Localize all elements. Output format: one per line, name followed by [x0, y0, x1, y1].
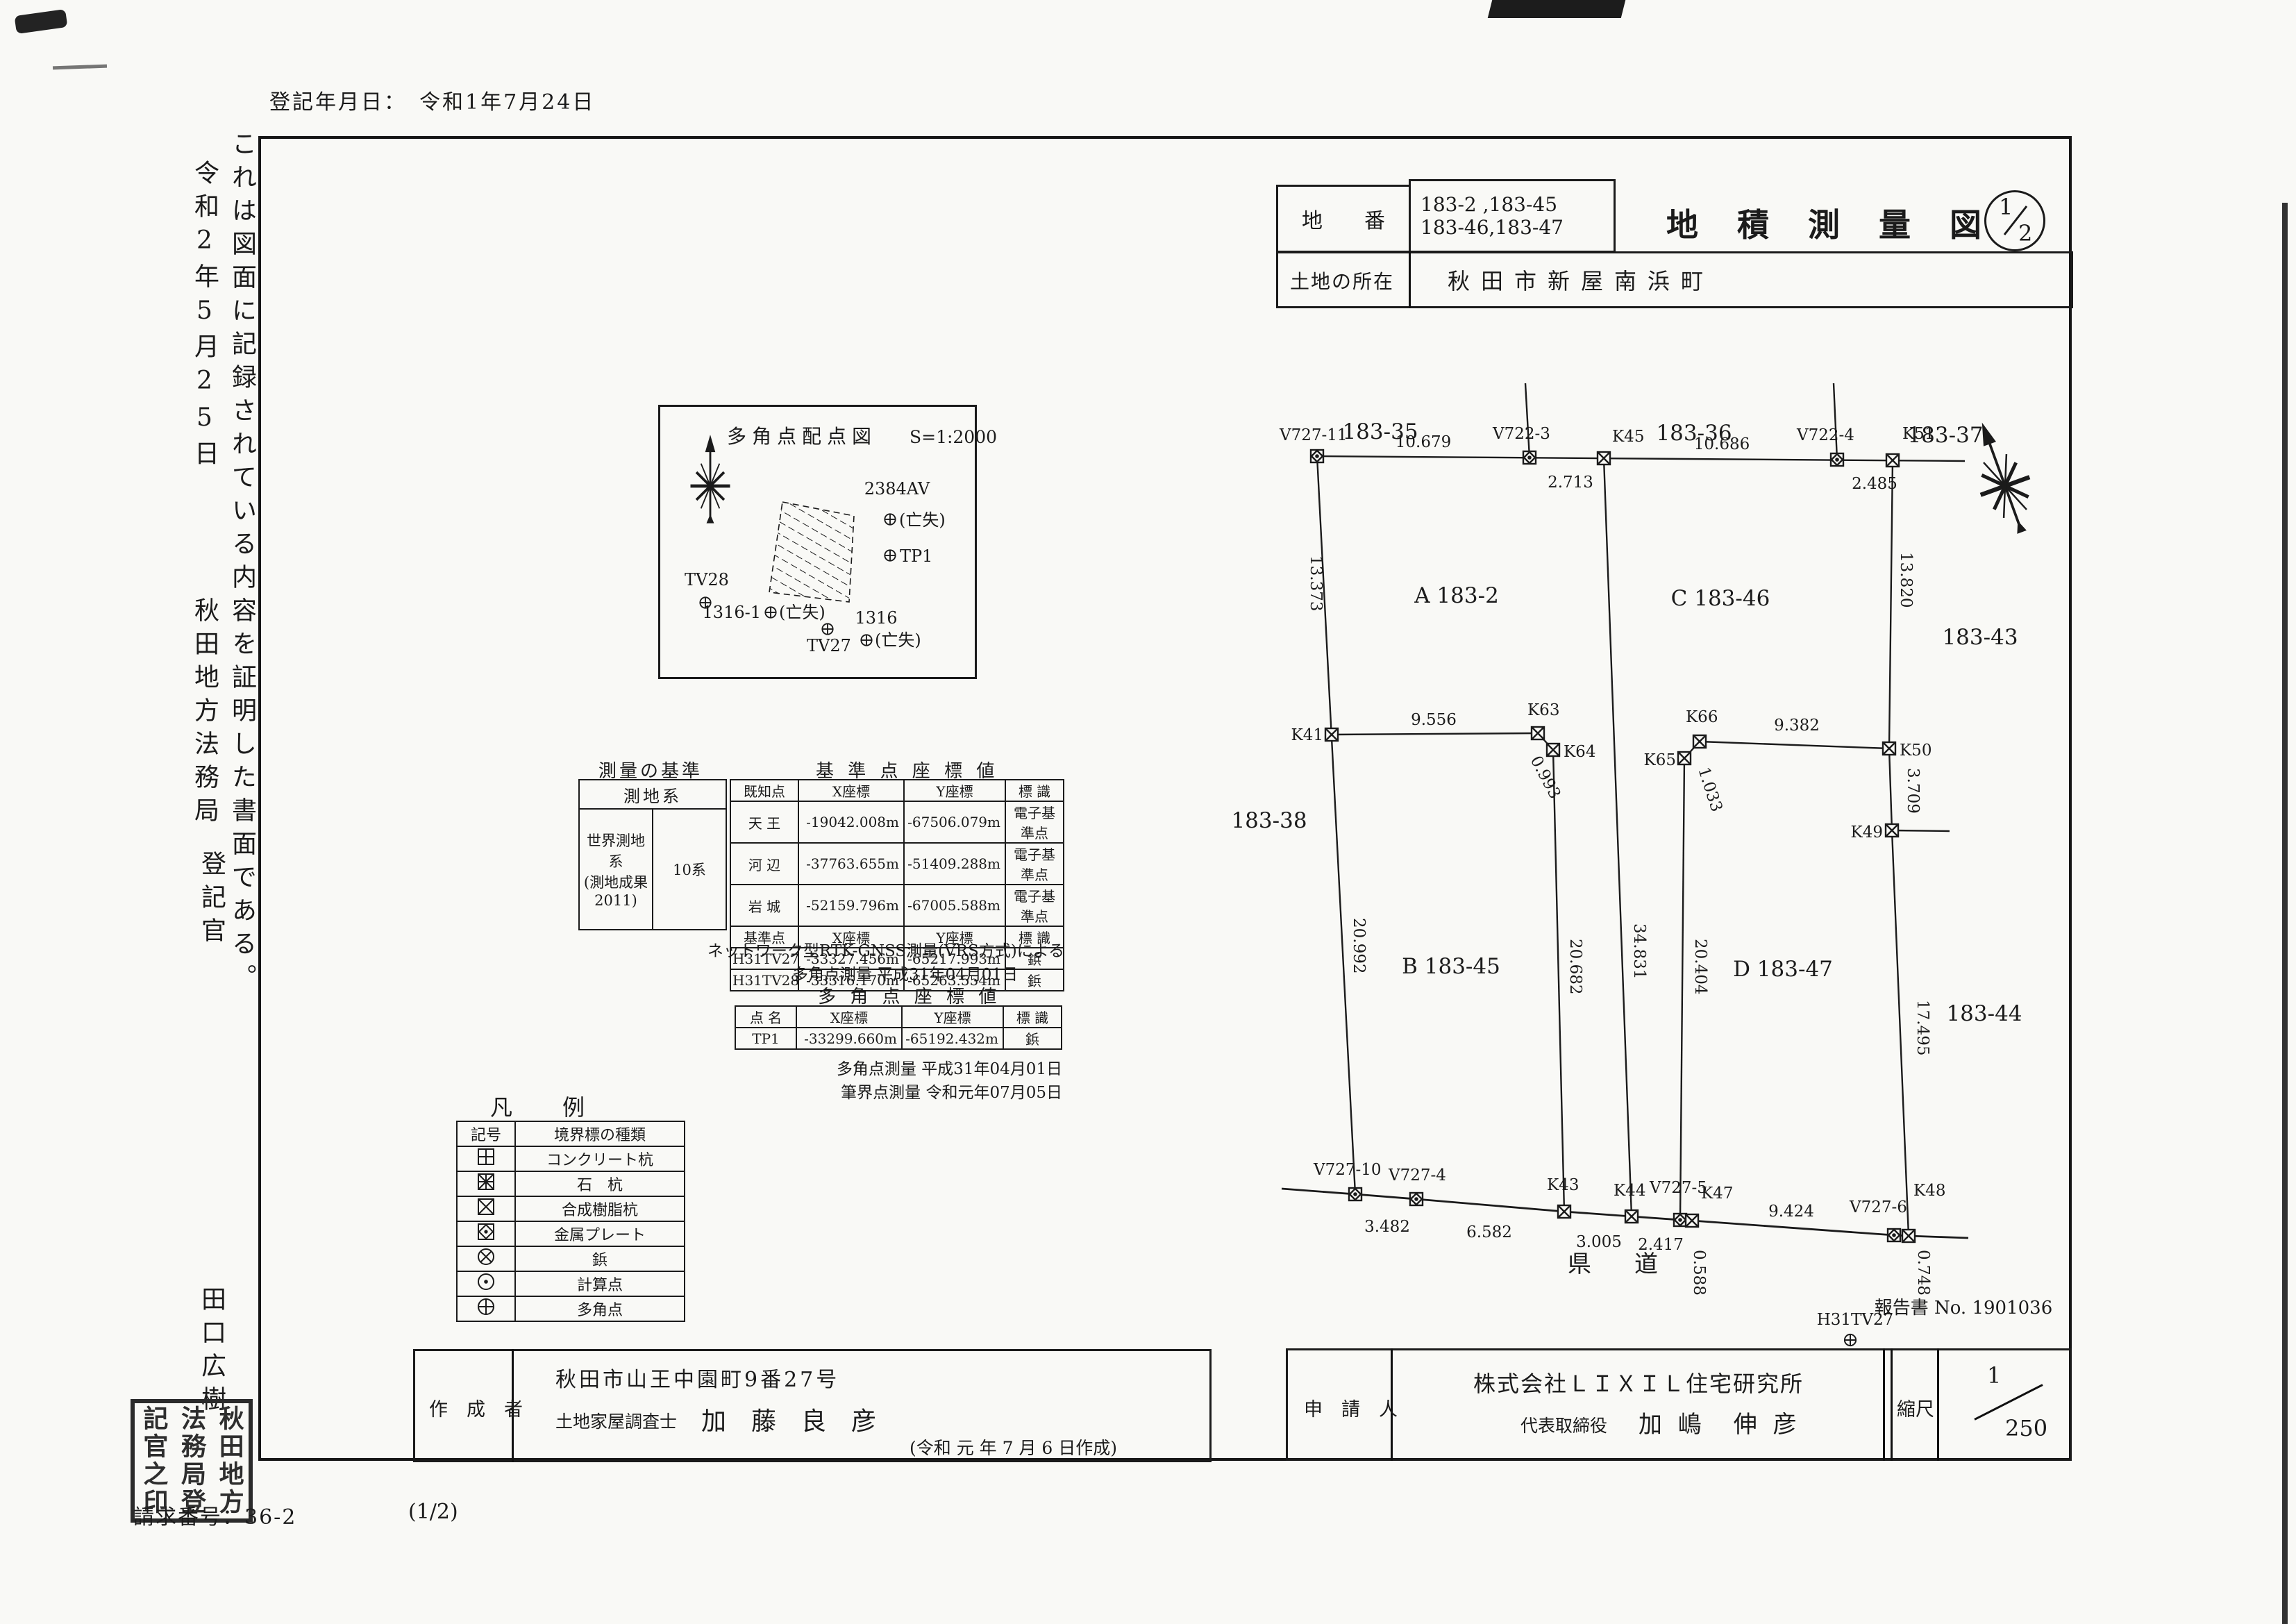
creator-title: 土地家屋調査士	[555, 1408, 677, 1433]
scale-divider-2	[1891, 1348, 1893, 1461]
inset-point-2384av: 2384AV	[864, 479, 930, 499]
dist-20992: 20.992	[1350, 918, 1368, 973]
label-K41: K41	[1291, 726, 1323, 744]
applicant-name: 加 嶋 伸 彦	[1639, 1405, 1801, 1439]
marker-K47	[1686, 1214, 1698, 1227]
label-V722-4: V722-4	[1796, 426, 1854, 444]
marker-K45	[1598, 452, 1610, 464]
dist-3709: 3.709	[1904, 768, 1922, 814]
inset-diagram: 多角点配点図 S=1:2000 2384AV (亡失) TP1 TV28 131…	[685, 425, 997, 655]
dist-9556: 9.556	[1411, 711, 1457, 729]
scale-label: 縮尺	[1897, 1394, 1934, 1421]
request-number: 請求番号：36-2	[133, 1500, 296, 1530]
dist-3482: 3.482	[1364, 1218, 1410, 1236]
parcel-183-43: 183-43	[1942, 625, 2018, 650]
marker-K63	[1532, 727, 1544, 739]
inset-point-1316: 1316	[855, 608, 897, 628]
scanned-survey-document: 登記年月日： 令和1年7月24日 これは図面に記録されている内容を証明した書面で…	[0, 0, 2296, 1624]
dist-1033: 1.033	[1694, 765, 1725, 814]
parcel-drawing	[1282, 383, 1968, 1238]
label-V727-6: V727-6	[1849, 1198, 1907, 1216]
label-K49: K49	[1851, 823, 1883, 842]
dist-9424: 9.424	[1768, 1203, 1814, 1221]
creator-name: 加 藤 良 彦	[701, 1401, 876, 1437]
central-lot-line	[1604, 458, 1632, 1216]
marker-V722-3	[1523, 451, 1536, 464]
creator-label: 作 成 者	[429, 1394, 523, 1421]
parcel-183-37: 183-37	[1907, 423, 1983, 448]
dist-17495: 17.495	[1913, 1000, 1932, 1055]
creator-date: (令和 元 年 7 月 6 日作成)	[910, 1434, 1117, 1459]
label-K64: K64	[1564, 743, 1595, 761]
label-K50: K50	[1900, 742, 1932, 760]
point-labels: V727-11 V722-3 K45 V722-4 K51 K41 K63 K6…	[1279, 425, 1945, 1329]
dist-0748: 0.748	[1914, 1250, 1932, 1296]
boundary-markers	[1311, 450, 1915, 1346]
inset-title: 多角点配点図	[727, 425, 877, 448]
inset-parcel-hatch	[769, 502, 854, 602]
marker-H31TV27	[1845, 1334, 1856, 1346]
sheet-note: (1/2)	[408, 1500, 458, 1524]
parcel-B-183-45: B 183-45	[1402, 954, 1500, 979]
marker-K65	[1678, 752, 1691, 764]
inset-point-tp1: TP1	[900, 546, 932, 566]
marker-K41	[1325, 728, 1338, 741]
label-K66: K66	[1686, 708, 1718, 726]
scale-divider-1	[1883, 1348, 1885, 1461]
parcel-183-35: 183-35	[1342, 419, 1418, 444]
marker-K66	[1693, 735, 1706, 748]
line-k41-k63	[1332, 733, 1538, 735]
road-label: 県 道	[1568, 1250, 1668, 1278]
applicant-block	[1286, 1348, 2072, 1461]
scale-numerator: 1	[1987, 1362, 2001, 1389]
dist-0993: 0.993	[1527, 753, 1564, 802]
label-V727-4: V727-4	[1388, 1166, 1446, 1184]
line-k66-k50	[1700, 742, 1889, 748]
applicant-company: 株式会社ＬＩＸＩＬ住宅研究所	[1473, 1366, 1804, 1398]
applicant-role: 代表取締役	[1520, 1412, 1607, 1437]
marker-V727-10	[1349, 1188, 1361, 1200]
report-number: 報告書 No. 1901036	[1875, 1298, 2053, 1319]
dist-2485: 2.485	[1852, 475, 1897, 493]
dist-20404: 20.404	[1691, 939, 1709, 994]
label-K44: K44	[1614, 1182, 1645, 1200]
parcel-183-36: 183-36	[1656, 421, 1732, 446]
parcel-183-38: 183-38	[1231, 808, 1307, 833]
marker-K64	[1547, 744, 1559, 756]
dist-2713: 2.713	[1548, 474, 1593, 492]
label-K43: K43	[1547, 1176, 1579, 1194]
inset-point-tv27: TV27	[807, 636, 851, 655]
marker-K50	[1883, 742, 1895, 755]
creator-address: 秋田市山王中園町9番27号	[555, 1362, 839, 1393]
label-V727-11: V727-11	[1279, 426, 1348, 444]
line-k65-v727-5	[1680, 758, 1684, 1220]
line-k64-k43	[1553, 750, 1564, 1212]
inset-lost-1316: (亡失)	[875, 630, 921, 650]
marker-V727-11	[1311, 450, 1323, 462]
dist-6582: 6.582	[1466, 1223, 1512, 1241]
marker-K43	[1558, 1205, 1570, 1218]
marker-V722-4	[1831, 453, 1843, 466]
marker-V727-4	[1410, 1193, 1423, 1205]
label-K65: K65	[1644, 751, 1676, 769]
marker-K44	[1625, 1210, 1638, 1223]
label-K47: K47	[1701, 1184, 1733, 1203]
inset-point-tv28: TV28	[685, 570, 729, 589]
marker-K49	[1886, 824, 1898, 837]
label-K45: K45	[1612, 428, 1644, 446]
inset-scale: S=1:2000	[910, 427, 997, 447]
dist-34831: 34.831	[1630, 923, 1648, 979]
marker-K51	[1886, 454, 1899, 467]
dist-0588: 0.588	[1690, 1250, 1708, 1296]
dist-9382: 9.382	[1774, 717, 1820, 735]
label-V722-3: V722-3	[1492, 425, 1550, 443]
applicant-label: 申 請 人	[1304, 1394, 1398, 1421]
marker-V727-6	[1888, 1229, 1900, 1241]
parcel-C-183-46: C 183-46	[1671, 586, 1770, 611]
label-V727-5: V727-5	[1649, 1179, 1707, 1197]
scale-divider-3	[1937, 1348, 1939, 1461]
dist-3005: 3.005	[1576, 1233, 1622, 1251]
marker-K48	[1902, 1230, 1915, 1242]
dist-13820: 13.820	[1897, 552, 1915, 608]
marker-V727-5	[1674, 1214, 1686, 1226]
lot-line-up-1	[1525, 383, 1530, 458]
inset-lost-1316-1: (亡失)	[779, 603, 826, 622]
dist-13373: 13.373	[1307, 555, 1325, 611]
lot-line-up-2	[1834, 383, 1837, 460]
parcel-D-183-47: D 183-47	[1733, 957, 1833, 982]
inset-lost-2384av: (亡失)	[899, 510, 946, 530]
top-boundary-line	[1317, 456, 1965, 461]
parcel-A-183-2: A 183-2	[1414, 583, 1499, 608]
scale-denominator: 250	[2005, 1415, 2047, 1441]
dist-20682: 20.682	[1566, 939, 1584, 994]
parcel-183-44: 183-44	[1946, 1001, 2022, 1026]
label-K48: K48	[1913, 1182, 1945, 1200]
inset-point-1316-1: 1316-1	[703, 603, 761, 622]
label-V727-10: V727-10	[1313, 1161, 1382, 1179]
label-K63: K63	[1527, 701, 1559, 719]
line-k49-stub	[1892, 830, 1950, 831]
